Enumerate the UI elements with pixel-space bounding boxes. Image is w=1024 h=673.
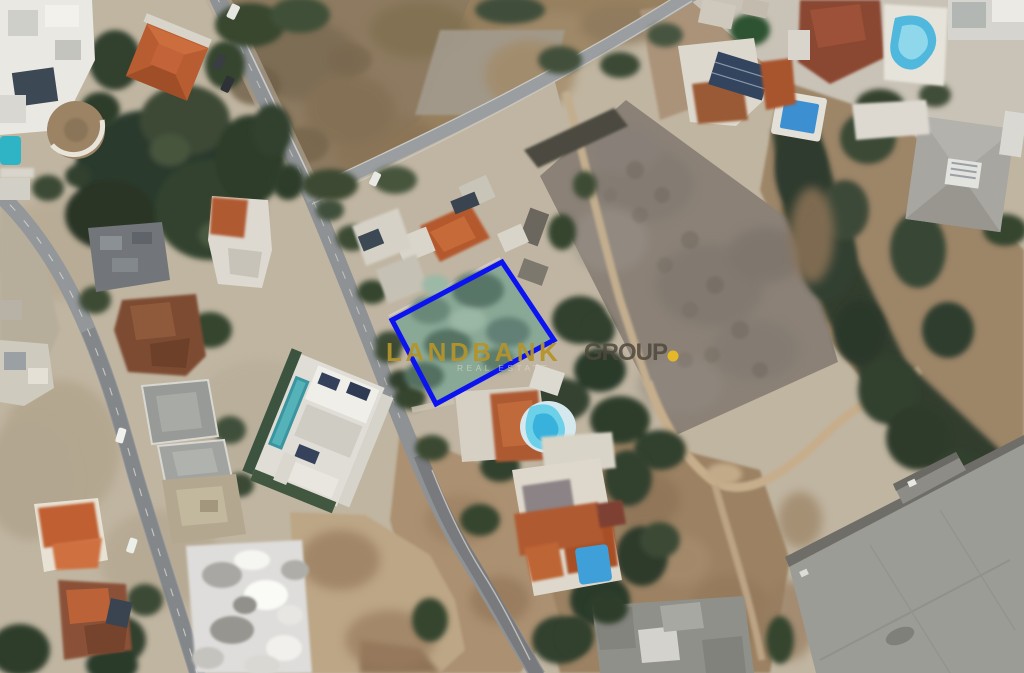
svg-text:GROUP: GROUP [584,339,668,366]
svg-text:REAL ESTATE: REAL ESTATE [457,363,550,373]
